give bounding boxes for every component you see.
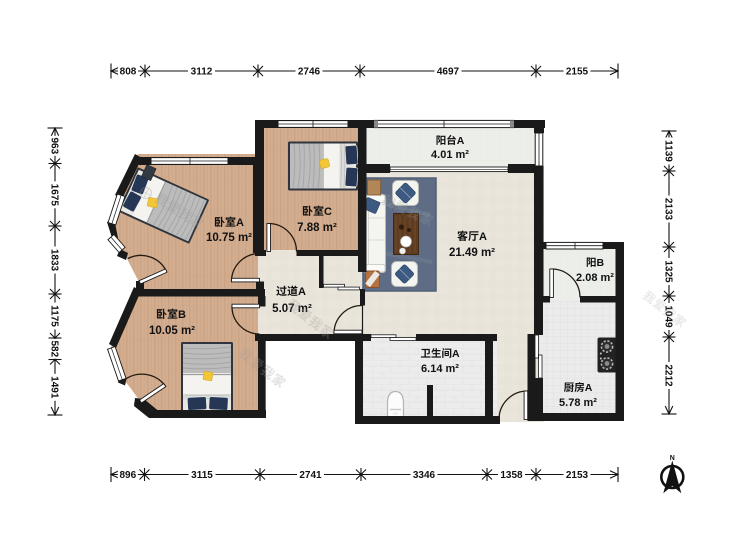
- svg-text:3112: 3112: [191, 67, 213, 78]
- svg-text:B: B: [178, 309, 186, 321]
- svg-text:B: B: [596, 257, 604, 269]
- svg-text:2741: 2741: [299, 470, 322, 481]
- svg-text:C: C: [324, 206, 332, 218]
- svg-text:1491: 1491: [49, 376, 60, 399]
- svg-text:1139: 1139: [663, 140, 674, 162]
- svg-text:5.78 m²: 5.78 m²: [559, 397, 597, 409]
- svg-text:1833: 1833: [49, 249, 60, 272]
- svg-text:10.05 m²: 10.05 m²: [149, 325, 195, 337]
- svg-text:A: A: [479, 231, 487, 243]
- svg-text:6.14 m²: 6.14 m²: [421, 363, 459, 375]
- svg-text:2133: 2133: [663, 198, 674, 221]
- svg-text:3115: 3115: [191, 470, 213, 481]
- svg-text:1675: 1675: [49, 184, 60, 207]
- svg-text:10.75 m²: 10.75 m²: [206, 232, 252, 244]
- svg-text:1325: 1325: [663, 260, 674, 283]
- svg-text:582: 582: [49, 340, 60, 357]
- svg-text:A: A: [585, 382, 593, 394]
- svg-text:2.08 m²: 2.08 m²: [576, 272, 614, 284]
- svg-text:N: N: [670, 455, 675, 462]
- svg-text:21.49 m²: 21.49 m²: [449, 247, 495, 259]
- svg-text:2746: 2746: [298, 67, 321, 78]
- svg-text:2155: 2155: [566, 67, 589, 78]
- svg-text:2153: 2153: [566, 470, 589, 481]
- svg-text:4.01 m²: 4.01 m²: [431, 149, 469, 161]
- svg-text:808: 808: [120, 67, 137, 78]
- svg-text:A: A: [298, 286, 306, 298]
- svg-text:963: 963: [49, 137, 60, 154]
- svg-text:4697: 4697: [437, 67, 460, 78]
- svg-text:A: A: [236, 217, 244, 229]
- svg-text:896: 896: [119, 470, 136, 481]
- svg-text:7.88 m²: 7.88 m²: [297, 222, 337, 234]
- svg-text:A: A: [457, 135, 465, 147]
- svg-text:3346: 3346: [413, 470, 436, 481]
- svg-text:A: A: [452, 348, 460, 360]
- svg-text:2212: 2212: [663, 364, 674, 387]
- svg-text:1358: 1358: [500, 470, 523, 481]
- svg-text:1175: 1175: [49, 305, 60, 327]
